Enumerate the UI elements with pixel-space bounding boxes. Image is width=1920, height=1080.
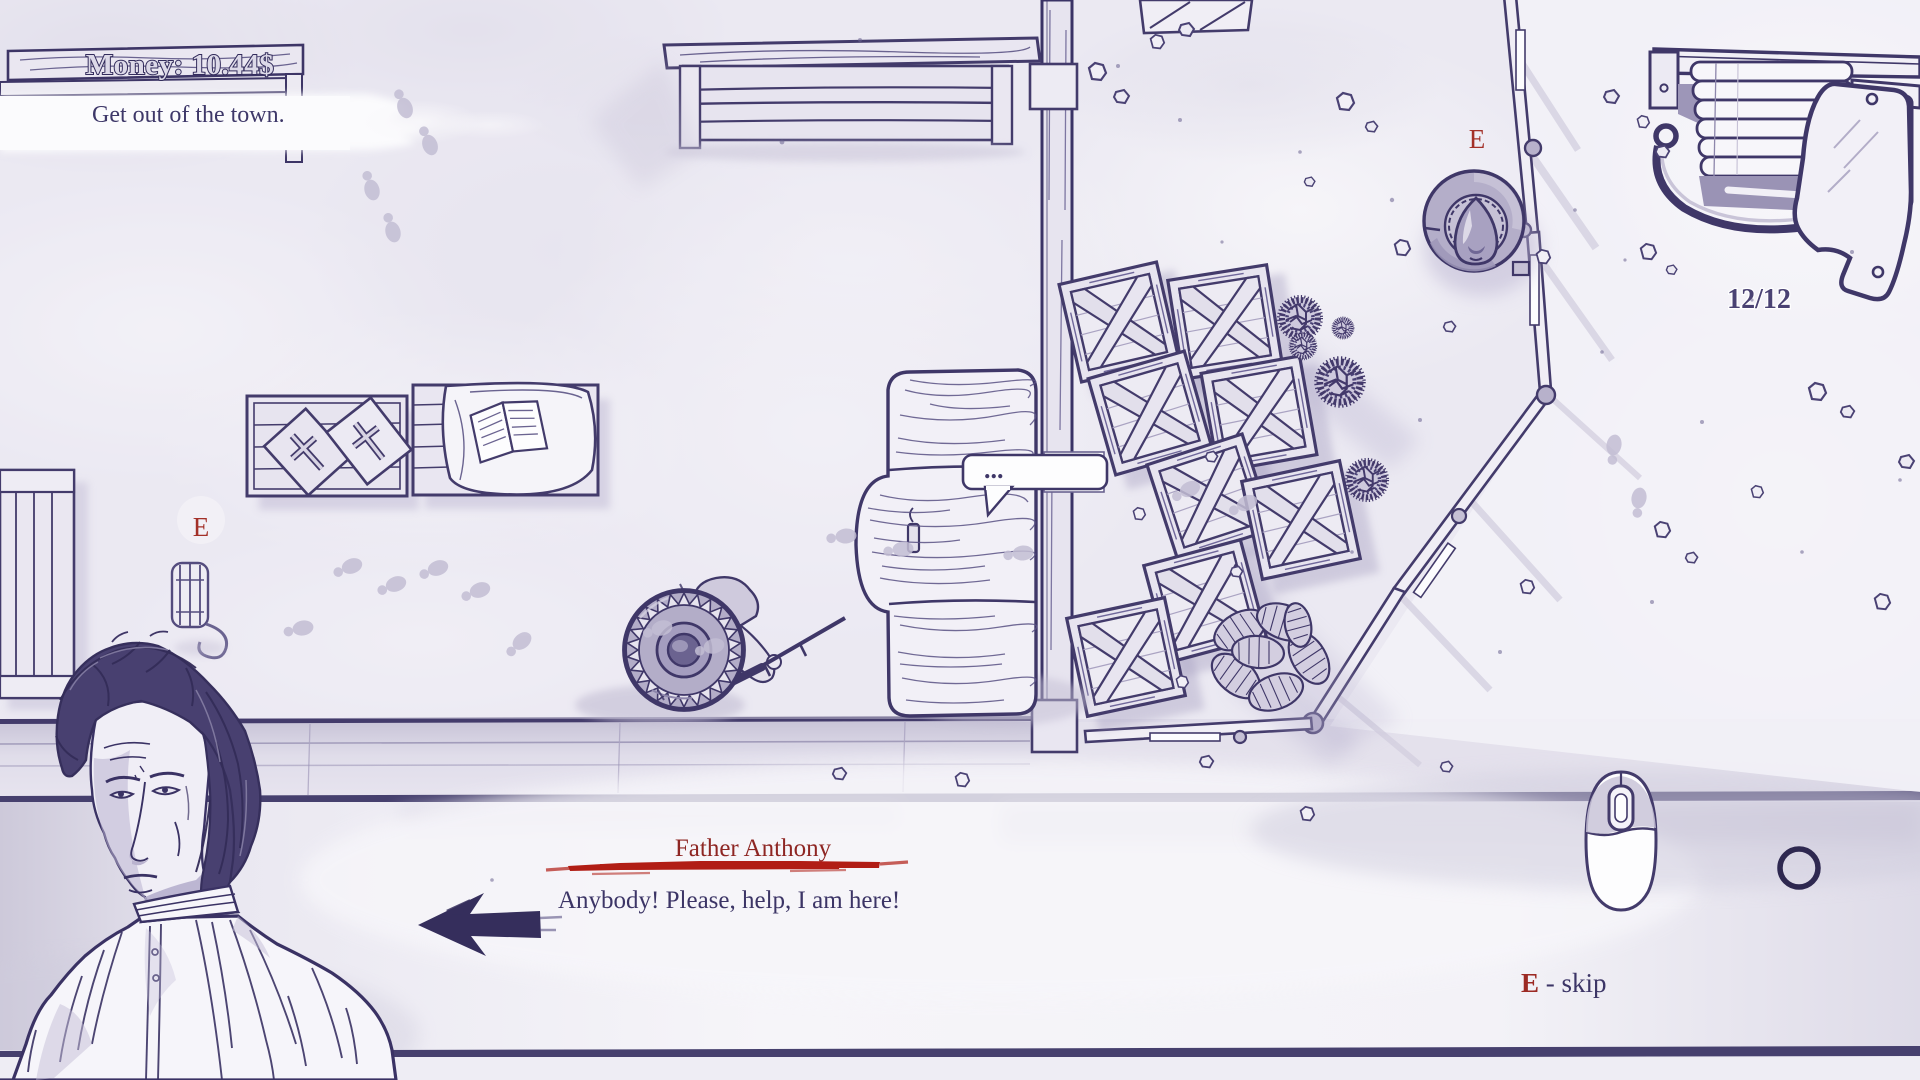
svg-text:E: E bbox=[193, 512, 210, 542]
svg-text:Get out of the town.: Get out of the town. bbox=[92, 102, 285, 128]
svg-text:...: ... bbox=[984, 455, 1004, 484]
svg-text:Money: 10.44$: Money: 10.44$ bbox=[86, 49, 275, 81]
svg-text:E - skip: E - skip bbox=[1521, 968, 1607, 998]
svg-text:Father Anthony: Father Anthony bbox=[675, 835, 832, 862]
svg-text:E: E bbox=[1469, 124, 1486, 154]
svg-text:Anybody! Please, help, I am he: Anybody! Please, help, I am here! bbox=[558, 887, 900, 914]
svg-text:12/12: 12/12 bbox=[1727, 284, 1791, 315]
